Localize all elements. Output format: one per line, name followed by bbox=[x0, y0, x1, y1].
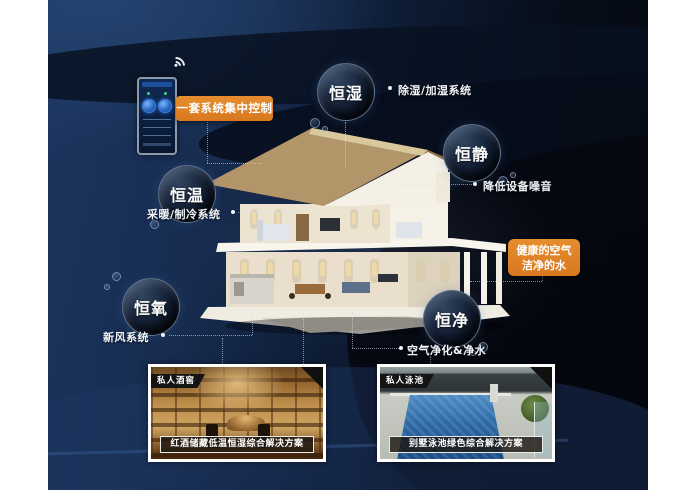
bubble-constant-oxygen: 恒氧 bbox=[122, 278, 180, 336]
mini-bubble bbox=[322, 126, 328, 132]
bubble-label: 恒氧 bbox=[134, 295, 168, 319]
card-caption: 红酒储藏低温恒湿综合解决方案 bbox=[160, 436, 314, 453]
control-knob bbox=[142, 99, 156, 113]
phone-row bbox=[143, 143, 171, 146]
card-caption: 别墅泳池绿色综合解决方案 bbox=[389, 436, 543, 453]
status-led bbox=[164, 92, 167, 95]
connector-line bbox=[398, 184, 472, 185]
phone-row bbox=[143, 135, 171, 136]
connector-line bbox=[222, 338, 223, 364]
connector-line bbox=[207, 122, 208, 163]
connector-dot bbox=[231, 210, 235, 214]
connector-line bbox=[207, 163, 262, 164]
bubble-label: 恒净 bbox=[435, 307, 469, 331]
bubble-constant-quiet: 恒静 bbox=[443, 124, 501, 182]
note-dehumidify: 除湿/加湿系统 bbox=[398, 82, 472, 98]
card-tag: 私人泳池 bbox=[380, 374, 434, 388]
pool-ladder bbox=[490, 384, 493, 402]
card-private-pool: 私人泳池 别墅泳池绿色综合解决方案 bbox=[377, 364, 555, 462]
connector-dot bbox=[161, 333, 165, 337]
clean-water-line: 洁净的水 bbox=[508, 258, 580, 273]
connector-dot bbox=[388, 86, 392, 90]
note-noise: 降低设备噪音 bbox=[483, 178, 552, 194]
connector-line bbox=[352, 312, 353, 348]
bubble-label: 恒静 bbox=[455, 141, 489, 165]
note-fresh-air: 新风系统 bbox=[103, 329, 149, 345]
healthy-air-water-callout: 健康的空气 洁净的水 bbox=[508, 239, 580, 276]
bubble-label: 恒湿 bbox=[329, 80, 363, 104]
poster-stage: 一套系统集中控制 健康的空气 洁净的水 恒湿 恒静 恒温 恒氧 恒净 除湿/加湿… bbox=[0, 0, 700, 497]
bubble-constant-purity: 恒净 bbox=[423, 290, 481, 348]
note-air-water-purify: 空气净化&净水 bbox=[407, 342, 486, 358]
bubble-label: 恒温 bbox=[170, 182, 204, 206]
connector-line bbox=[238, 212, 293, 213]
mini-bubble bbox=[112, 272, 121, 281]
status-led bbox=[147, 92, 150, 95]
connector-line bbox=[352, 348, 399, 349]
bubble-constant-humidity: 恒湿 bbox=[317, 63, 375, 121]
connector-line bbox=[345, 122, 346, 168]
phone-row bbox=[143, 119, 171, 120]
connector-line bbox=[252, 303, 253, 335]
card-tag: 私人酒窖 bbox=[151, 374, 205, 388]
mini-bubble bbox=[310, 118, 320, 128]
control-knob bbox=[158, 99, 172, 113]
central-control-callout: 一套系统集中控制 bbox=[176, 96, 273, 121]
card-wine-cellar: 私人酒窖 红酒储藏低温恒湿综合解决方案 bbox=[148, 364, 326, 462]
connector-dot bbox=[473, 182, 477, 186]
note-heating-cooling: 采暖/制冷系统 bbox=[147, 206, 221, 222]
connector-line bbox=[169, 335, 252, 336]
connector-dot bbox=[399, 346, 403, 350]
mini-bubble bbox=[104, 284, 110, 290]
healthy-air-line: 健康的空气 bbox=[508, 243, 580, 258]
smart-controller-phone bbox=[137, 77, 177, 155]
phone-titlebar bbox=[142, 82, 172, 87]
phone-row bbox=[143, 127, 171, 128]
connector-line bbox=[303, 302, 304, 364]
central-control-label: 一套系统集中控制 bbox=[177, 101, 273, 115]
connector-line bbox=[470, 281, 542, 282]
